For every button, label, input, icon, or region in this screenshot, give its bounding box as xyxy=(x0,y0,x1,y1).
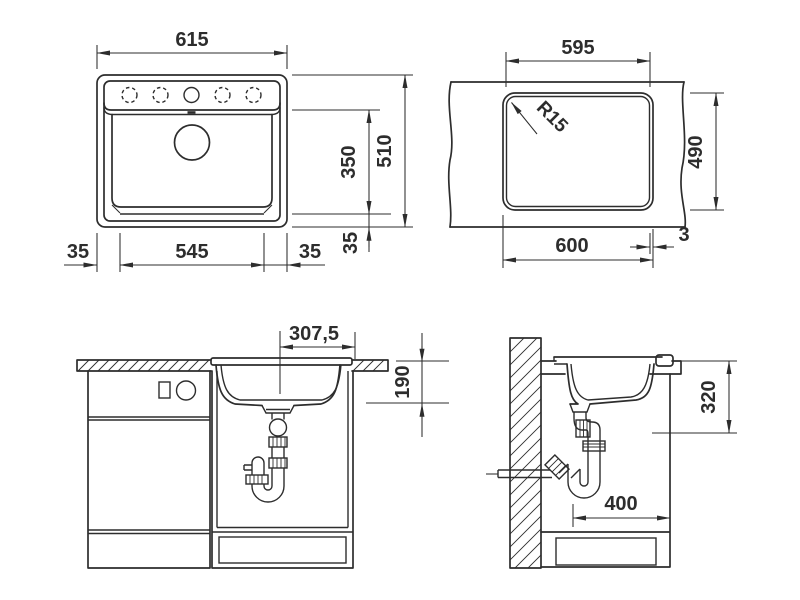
dim-cutout-width-bottom: 600 xyxy=(555,235,588,257)
dim-mount-depth: 320 xyxy=(698,380,720,413)
dim-corner-radius: R15 xyxy=(532,97,572,137)
wall-hatch xyxy=(510,321,541,599)
countertop-side xyxy=(541,361,681,374)
control-knob xyxy=(177,381,196,400)
drain-trap xyxy=(244,406,294,503)
tap-hole-icon xyxy=(122,88,137,103)
dim-left-margin: 35 xyxy=(67,241,89,263)
dim-cutout-depth: 490 xyxy=(685,135,707,168)
sink-rim xyxy=(211,358,352,365)
dim-bowl-width: 545 xyxy=(175,241,208,263)
dim-edge-offset: 3 xyxy=(678,224,689,246)
tap-hole-icon xyxy=(215,88,230,103)
dim-clearance: 400 xyxy=(604,493,637,515)
countertop-hatch xyxy=(78,360,209,371)
cutout-outline xyxy=(503,93,653,210)
faucet-ledge xyxy=(104,103,280,110)
sink-outer-edge xyxy=(97,75,287,227)
faucet-holes xyxy=(122,88,261,113)
cutout-inner-line xyxy=(507,97,650,207)
plan-view: 615 510 350 35 35 545 35 xyxy=(64,29,413,272)
control-button xyxy=(159,382,170,398)
cabinet-plinth-side xyxy=(556,538,656,565)
worktop-break-line xyxy=(449,82,452,227)
dim-bottom-margin: 35 xyxy=(340,232,362,254)
dim-basin-depth: 190 xyxy=(392,365,414,398)
left-cabinet xyxy=(88,371,210,568)
dim-right-margin: 35 xyxy=(299,241,321,263)
drain-trap-side xyxy=(486,404,605,498)
drain-hole xyxy=(175,125,210,160)
trap-nut xyxy=(270,419,287,436)
tap-hole-icon xyxy=(184,88,199,103)
dim-bowl-depth: 350 xyxy=(338,145,360,178)
basin-inner-wall xyxy=(221,365,341,400)
dim-overall-width: 615 xyxy=(175,29,208,51)
side-view: 320 400 xyxy=(486,321,737,599)
dim-drain-offset: 307,5 xyxy=(289,323,339,345)
dim-overall-depth: 510 xyxy=(374,134,396,167)
basin-side-inner xyxy=(571,364,650,400)
tap-hole-icon xyxy=(153,88,168,103)
countertop-hatch xyxy=(353,360,384,371)
dim-cutout-width-top: 595 xyxy=(561,37,594,59)
tap-hole-icon xyxy=(246,88,261,103)
sink-technical-drawing: 615 510 350 35 35 545 35 R15 595 xyxy=(0,0,800,600)
cabinet-plinth xyxy=(219,537,346,563)
front-view: 307,5 190 xyxy=(77,323,449,568)
cutout-view: R15 595 490 600 3 xyxy=(449,37,724,268)
